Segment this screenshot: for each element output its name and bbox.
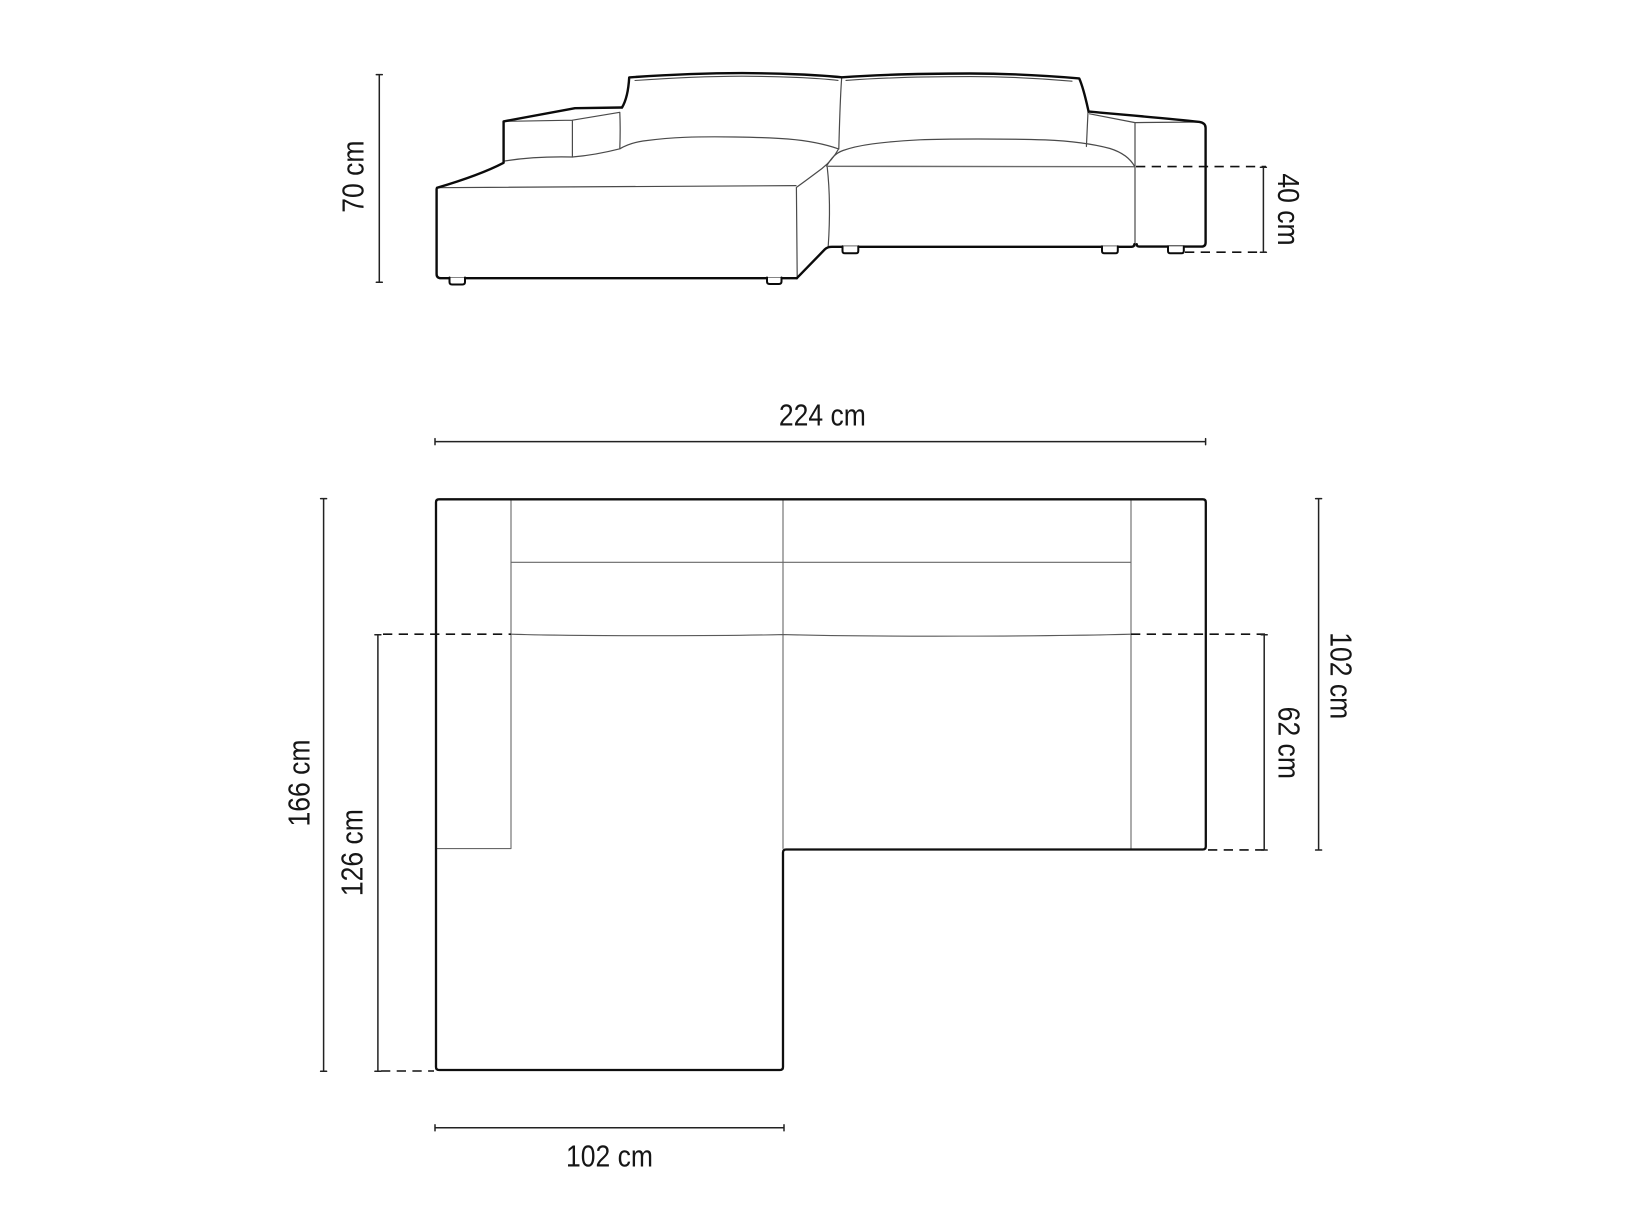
svg-text:62 cm: 62 cm: [1271, 707, 1305, 779]
svg-text:126 cm: 126 cm: [336, 809, 370, 896]
svg-text:166 cm: 166 cm: [283, 740, 317, 827]
svg-text:102 cm: 102 cm: [1323, 632, 1357, 719]
svg-text:102 cm: 102 cm: [566, 1140, 653, 1174]
svg-text:40 cm: 40 cm: [1270, 173, 1304, 245]
svg-text:224 cm: 224 cm: [779, 399, 866, 433]
svg-text:70 cm: 70 cm: [337, 140, 371, 212]
